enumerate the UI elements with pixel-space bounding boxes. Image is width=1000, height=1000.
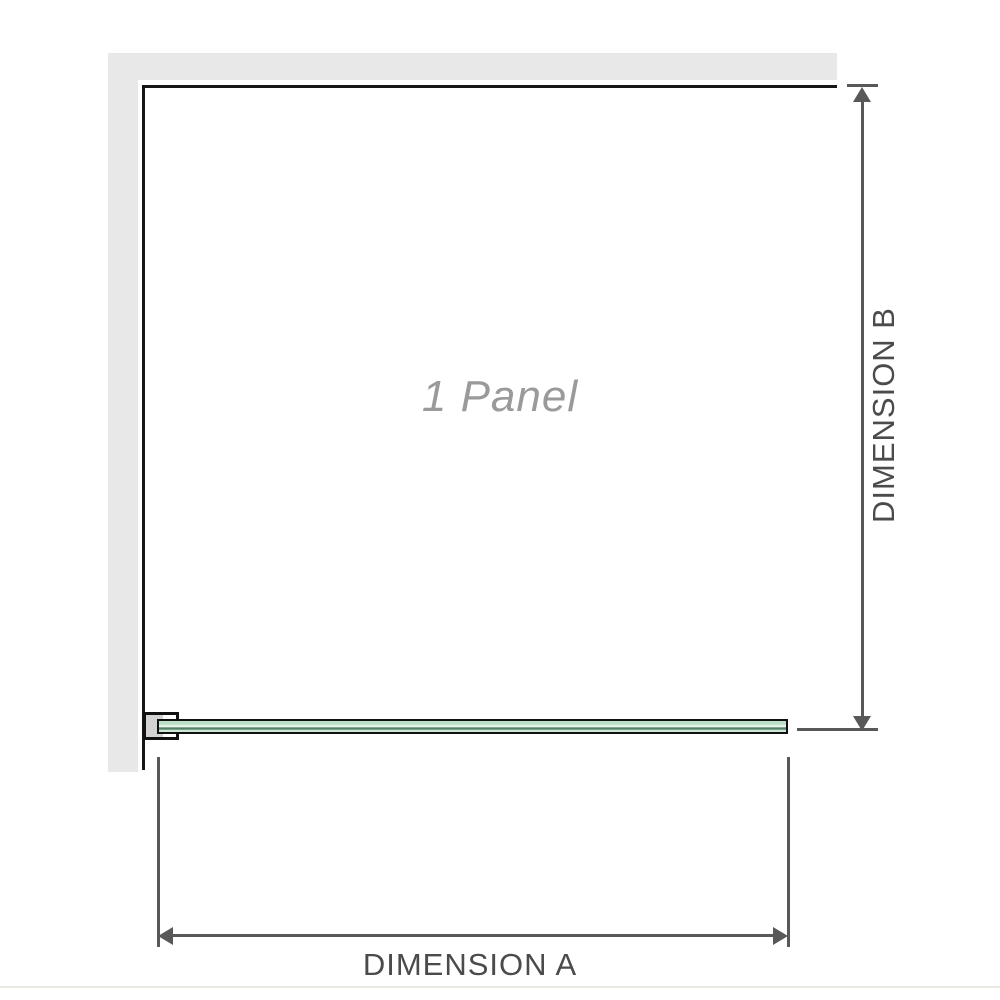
dimension-b-line bbox=[861, 99, 864, 719]
extension-line-right bbox=[787, 757, 790, 947]
panel-edge-left bbox=[142, 85, 145, 770]
arrow-right-icon bbox=[773, 927, 788, 945]
arrow-down-icon bbox=[853, 716, 871, 731]
wall-left bbox=[108, 53, 138, 772]
arrow-up-icon bbox=[853, 87, 871, 102]
dimension-a-line bbox=[171, 934, 775, 937]
panel-count-label: 1 Panel bbox=[385, 370, 615, 424]
shower-panel-dimension-diagram: 1 Panel DIMENSION B DIMENSION A bbox=[0, 0, 1000, 1000]
footer-divider bbox=[0, 986, 1000, 988]
glass-panel bbox=[157, 719, 788, 734]
dimension-b-label: DIMENSION B bbox=[869, 300, 899, 530]
arrow-left-icon bbox=[158, 927, 173, 945]
extension-line-left bbox=[157, 757, 160, 947]
wall-top bbox=[108, 53, 837, 80]
dimension-a-label: DIMENSION A bbox=[340, 948, 600, 982]
panel-edge-top bbox=[142, 85, 837, 88]
